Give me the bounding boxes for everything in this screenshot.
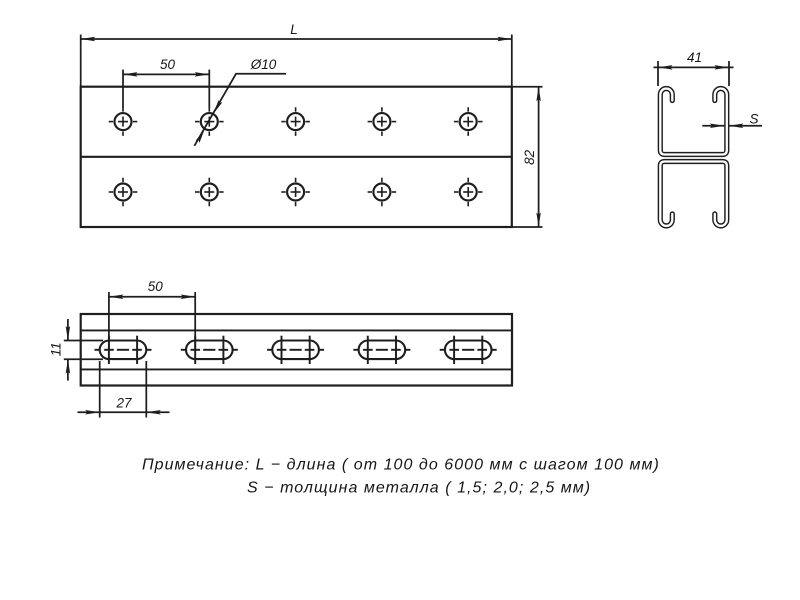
svg-text:50: 50 (148, 279, 164, 294)
svg-text:Ø10: Ø10 (250, 57, 277, 72)
svg-text:Примечание: L − длина ( от 100: Примечание: L − длина ( от 100 до 6000 м… (142, 457, 660, 474)
svg-text:S: S (749, 112, 758, 127)
svg-text:S − толщина металла ( 1,5; 2,0: S − толщина металла ( 1,5; 2,0; 2,5 мм) (247, 480, 591, 497)
svg-text:82: 82 (522, 149, 537, 165)
svg-text:41: 41 (687, 50, 702, 65)
svg-text:27: 27 (115, 395, 132, 410)
svg-text:L: L (290, 22, 298, 37)
svg-text:50: 50 (160, 57, 176, 72)
svg-text:11: 11 (49, 342, 64, 356)
